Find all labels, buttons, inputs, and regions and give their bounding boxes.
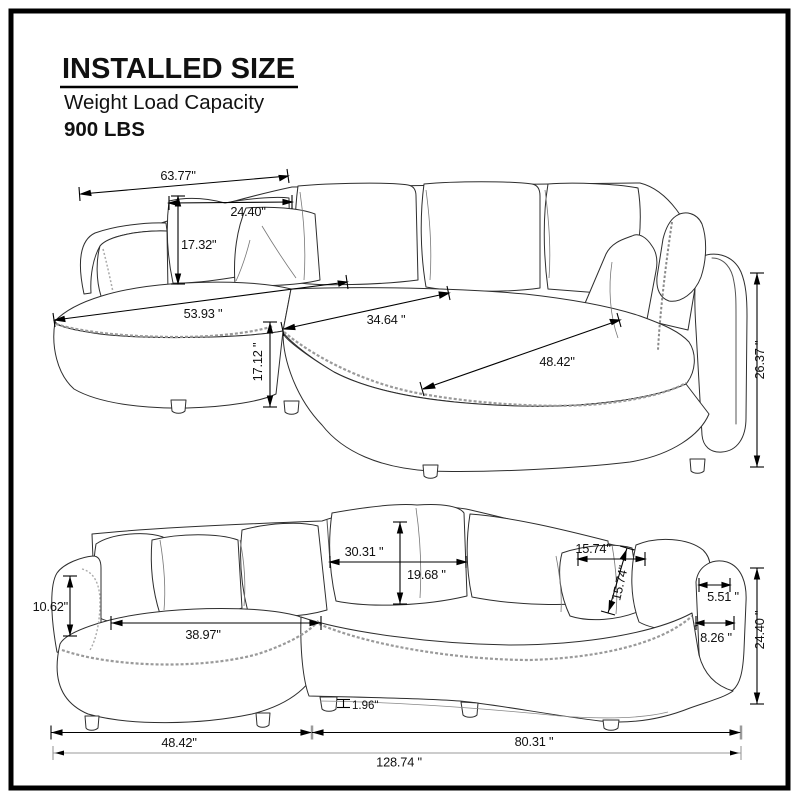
svg-text:34.64 ": 34.64 " [367,312,406,327]
svg-text:48.42": 48.42" [161,735,196,750]
svg-text:26.37 ": 26.37 " [752,341,767,380]
svg-text:15.74": 15.74" [575,541,610,556]
svg-text:128.74 ": 128.74 " [376,755,422,770]
svg-text:24.40 ": 24.40 " [752,611,767,650]
svg-text:Weight Load Capacity: Weight Load Capacity [64,91,265,114]
svg-text:19.68 ": 19.68 " [407,567,446,582]
svg-text:10.62": 10.62" [33,599,68,614]
svg-text:17.32": 17.32" [181,237,216,252]
svg-text:900 LBS: 900 LBS [64,118,145,141]
svg-text:5.51 ": 5.51 " [707,589,739,604]
svg-text:8.26 ": 8.26 " [700,630,732,645]
svg-text:INSTALLED SIZE: INSTALLED SIZE [62,53,295,85]
svg-text:53.93 ": 53.93 " [184,306,223,321]
svg-text:1.96": 1.96" [352,700,378,712]
svg-text:63.77": 63.77" [160,168,195,183]
svg-text:38.97": 38.97" [185,627,220,642]
svg-text:24.40": 24.40" [230,204,265,219]
svg-text:17.12 ": 17.12 " [250,343,265,382]
svg-text:48.42": 48.42" [539,354,574,369]
svg-text:30.31 ": 30.31 " [345,544,384,559]
svg-text:80.31 ": 80.31 " [515,734,554,749]
